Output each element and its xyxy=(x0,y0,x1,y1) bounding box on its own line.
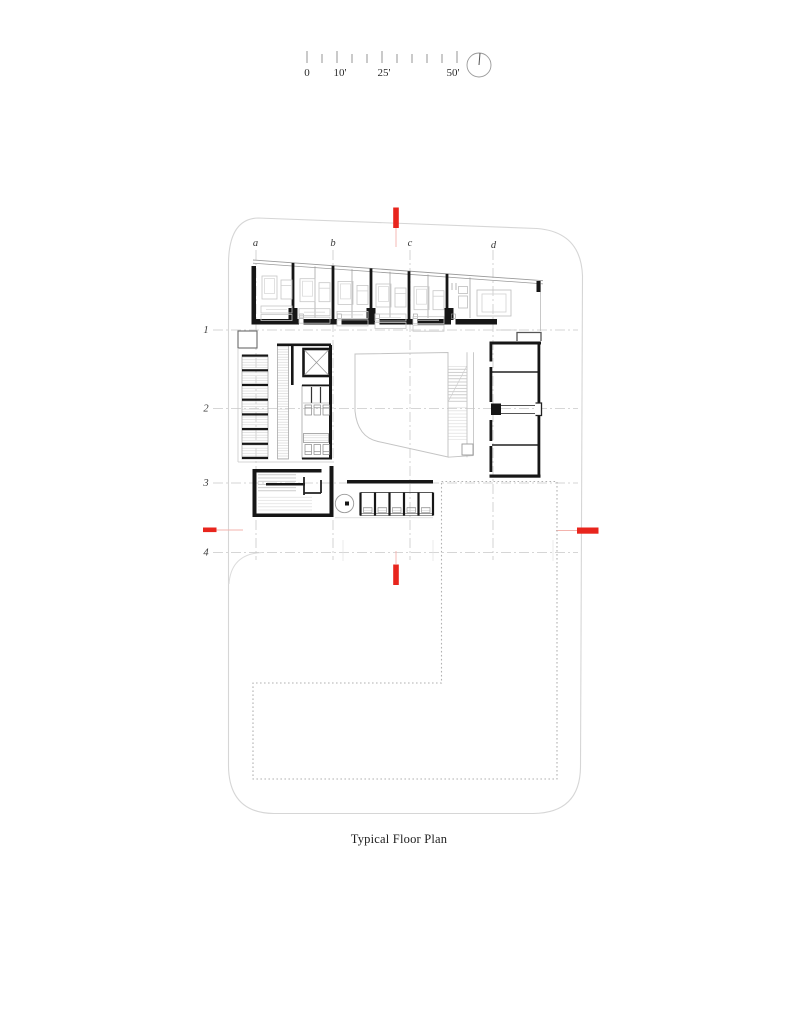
room-band-top xyxy=(252,260,544,331)
grid-row-label-4: 4 xyxy=(203,548,209,559)
corridor-wall-top-band xyxy=(252,319,498,325)
stall-fixtures xyxy=(364,508,431,513)
section-marker-right xyxy=(577,528,599,534)
courtyard xyxy=(355,352,474,457)
sink-counter xyxy=(304,434,329,443)
grid-col-label-d: d xyxy=(491,240,497,251)
door-fixtures xyxy=(299,314,455,319)
lower-terrace-corner-line xyxy=(229,553,262,585)
toilet-fixtures-top xyxy=(305,405,330,415)
section-marker-bottom xyxy=(393,565,399,586)
stair-run-upper xyxy=(258,473,296,492)
section-marker-left xyxy=(203,528,217,533)
left-wing-top-wall xyxy=(277,344,331,347)
room-unit-furniture xyxy=(413,287,444,332)
section-marker-top xyxy=(393,208,399,229)
room-unit-furniture xyxy=(299,279,330,324)
scale-label-50: 50' xyxy=(447,67,460,79)
stair-run-lower xyxy=(258,496,312,512)
cell-stack xyxy=(242,355,268,460)
right-wing xyxy=(490,330,542,478)
scale-label-25: 25' xyxy=(378,67,391,79)
scale-label-0: 0 xyxy=(304,67,310,79)
floor-plan-canvas: 0 10' 25' 50' a b c d 1 2 3 4 xyxy=(0,0,792,1024)
roof-outline-dashed xyxy=(253,482,557,780)
bridge-connector xyxy=(491,403,542,416)
end-room-furniture xyxy=(452,283,511,316)
entry-notch xyxy=(238,331,257,348)
grid-row-label-2: 2 xyxy=(203,404,209,415)
grid-col-label-b: b xyxy=(330,238,335,249)
courtyard-outline xyxy=(355,353,448,458)
grid-col-label-a: a xyxy=(253,238,258,249)
room-unit-furniture xyxy=(261,276,292,321)
scale-bar xyxy=(307,51,457,63)
plan-title: Typical Floor Plan xyxy=(351,832,448,846)
grid-row-labels: 1 2 3 4 xyxy=(202,325,209,559)
scale-bar-labels: 0 10' 25' 50' xyxy=(304,67,459,79)
grand-stair xyxy=(448,352,474,457)
grid-extension-lines xyxy=(343,540,553,561)
grid-col-label-c: c xyxy=(408,238,413,249)
grid-row-label-3: 3 xyxy=(202,478,208,489)
stair-block-south xyxy=(253,466,334,517)
scale-label-10: 10' xyxy=(334,67,347,79)
toilet-fixtures-bottom xyxy=(305,445,330,455)
south-wall xyxy=(347,480,433,484)
building-plan xyxy=(238,260,543,518)
north-arrow-icon xyxy=(467,53,491,77)
drawing-sheet: 0 10' 25' 50' a b c d 1 2 3 4 xyxy=(0,0,792,1024)
spiral-column xyxy=(335,494,353,512)
left-wing xyxy=(238,344,332,463)
restroom-block xyxy=(302,385,332,460)
ramp-stair-strip xyxy=(278,345,289,459)
grid-row-label-1: 1 xyxy=(203,325,208,336)
grid-column-labels: a b c d xyxy=(253,238,497,251)
elevator-shaft xyxy=(304,349,330,376)
